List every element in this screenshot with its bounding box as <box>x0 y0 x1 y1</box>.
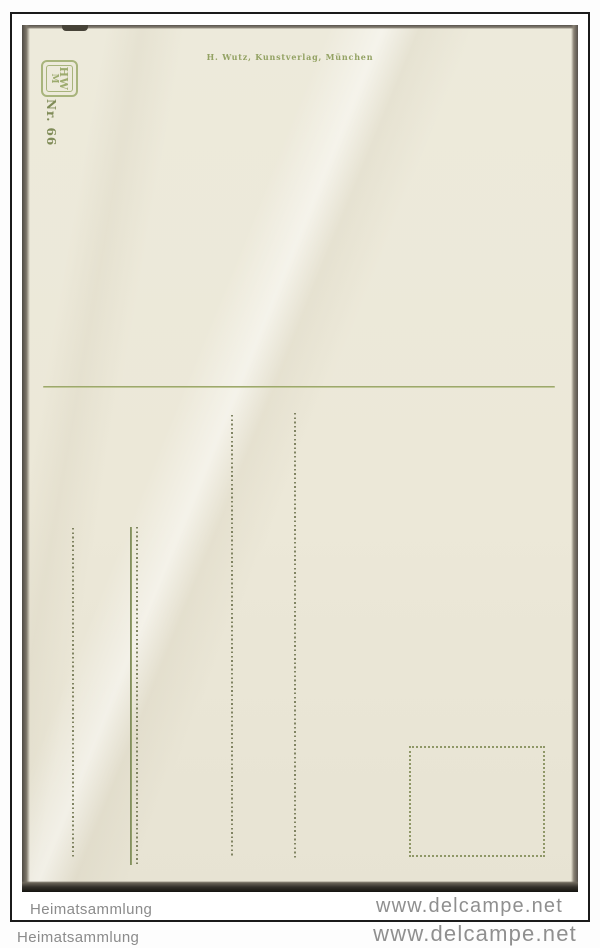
postcard-scan: H. Wutz, Kunstverlag, München HW M Nr. 6… <box>22 25 578 892</box>
card-edge-right <box>571 25 578 892</box>
monogram-line1: HW <box>59 67 70 91</box>
publisher-monogram-stamp: HW M <box>41 60 78 97</box>
address-divider-line <box>43 386 555 388</box>
address-dotted-line-3 <box>72 528 74 858</box>
address-dotted-line-2 <box>294 413 296 858</box>
address-dotted-line-4 <box>136 527 138 864</box>
seller-watermark-outer: Heimatsammlung <box>17 929 139 946</box>
series-number-label: Nr. 66 <box>44 99 58 159</box>
card-top-notch <box>62 25 88 31</box>
publisher-monogram-letters: HW M <box>46 65 73 92</box>
site-watermark-inner: www.delcampe.net <box>376 895 563 918</box>
publisher-imprint: H. Wutz, Kunstverlag, München <box>22 52 558 62</box>
site-watermark-outer: www.delcampe.net <box>373 921 577 947</box>
stamp-box <box>409 746 545 857</box>
seller-watermark-inner: Heimatsammlung <box>30 901 152 918</box>
card-edge-top <box>22 25 578 29</box>
address-solid-line <box>130 527 132 865</box>
address-dotted-line-1 <box>231 415 233 858</box>
card-edge-bottom <box>22 881 578 892</box>
card-edge-left <box>22 25 30 892</box>
monogram-line2: M <box>50 74 59 84</box>
page-background: H. Wutz, Kunstverlag, München HW M Nr. 6… <box>0 0 600 948</box>
